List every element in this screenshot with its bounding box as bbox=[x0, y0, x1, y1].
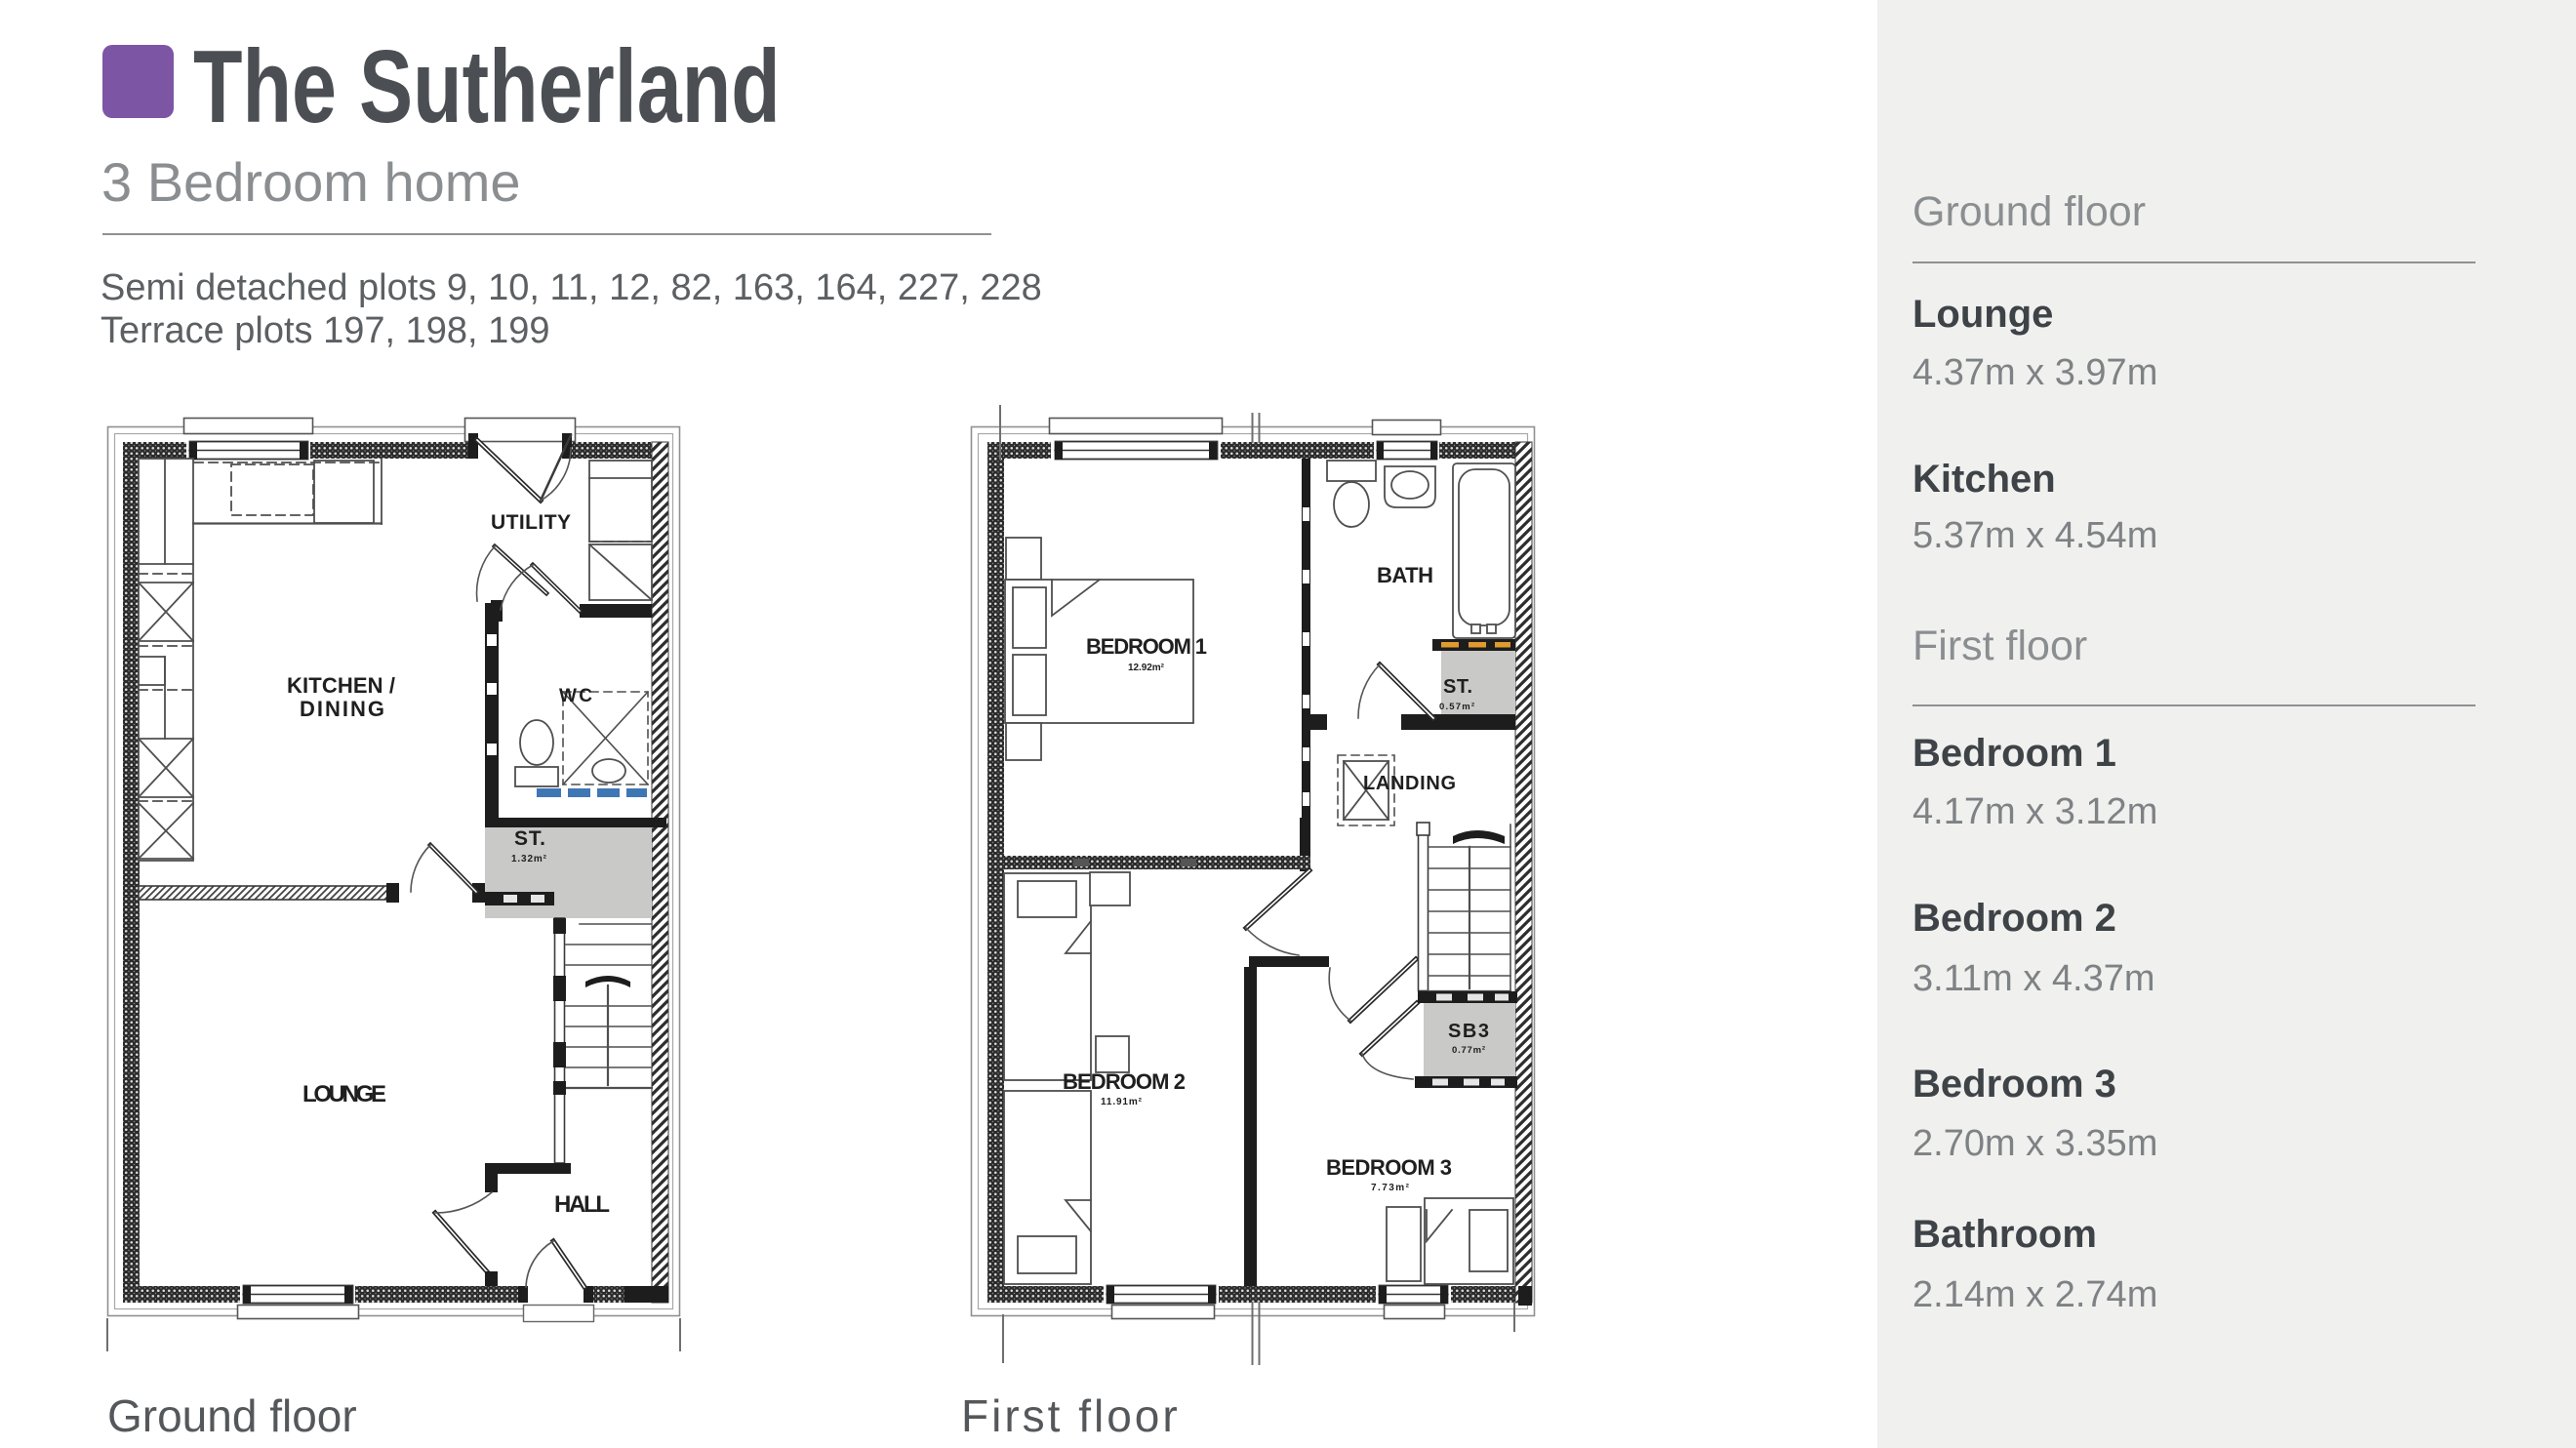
svg-text:BEDROOM 2: BEDROOM 2 bbox=[1063, 1069, 1186, 1094]
svg-text:7.73m²: 7.73m² bbox=[1371, 1183, 1410, 1193]
svg-text:LANDING: LANDING bbox=[1363, 773, 1456, 794]
svg-text:KITCHEN /: KITCHEN / bbox=[287, 673, 395, 698]
svg-text:11.91m²: 11.91m² bbox=[1101, 1097, 1143, 1107]
svg-text:1.32m²: 1.32m² bbox=[511, 854, 547, 865]
svg-text:12.92m²: 12.92m² bbox=[1128, 663, 1165, 673]
svg-text:WC: WC bbox=[559, 686, 592, 706]
svg-text:BEDROOM 1: BEDROOM 1 bbox=[1086, 634, 1207, 659]
svg-text:BEDROOM 3: BEDROOM 3 bbox=[1326, 1155, 1452, 1180]
svg-text:BATH: BATH bbox=[1377, 563, 1433, 587]
svg-text:HALL: HALL bbox=[554, 1191, 610, 1218]
svg-text:0.77m²: 0.77m² bbox=[1452, 1045, 1485, 1056]
svg-text:ST.: ST. bbox=[1443, 676, 1472, 698]
svg-text:LOUNGE: LOUNGE bbox=[302, 1081, 386, 1107]
svg-text:UTILITY: UTILITY bbox=[491, 511, 571, 534]
svg-text:ST.: ST. bbox=[514, 827, 545, 850]
svg-text:DINING: DINING bbox=[300, 697, 384, 721]
svg-text:SB3: SB3 bbox=[1448, 1021, 1489, 1042]
